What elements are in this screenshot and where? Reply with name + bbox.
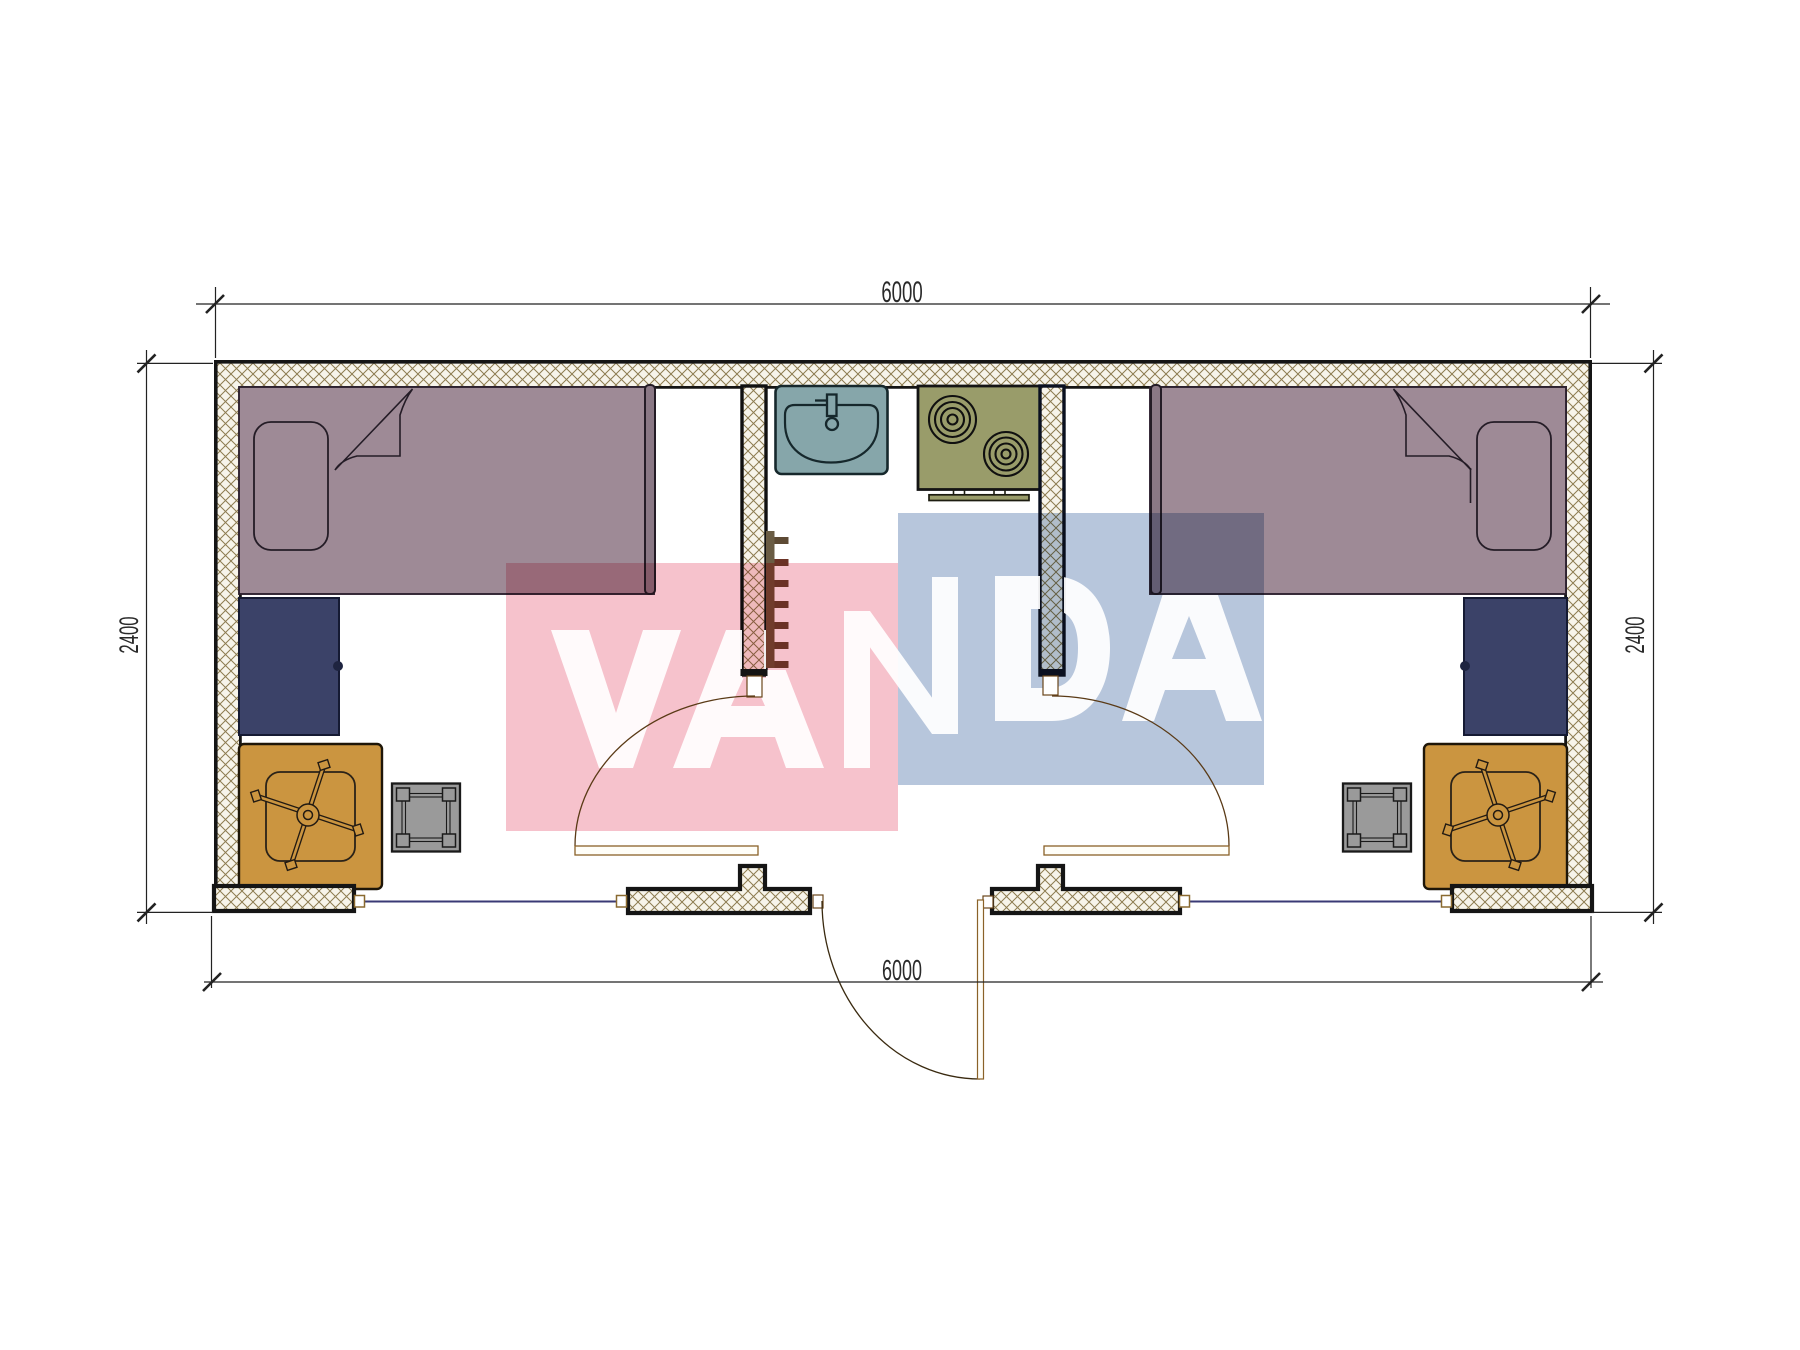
svg-text:2400: 2400 bbox=[1620, 616, 1650, 653]
svg-text:2400: 2400 bbox=[114, 616, 144, 653]
svg-text:6000: 6000 bbox=[882, 955, 922, 987]
svg-text:6000: 6000 bbox=[881, 276, 922, 310]
